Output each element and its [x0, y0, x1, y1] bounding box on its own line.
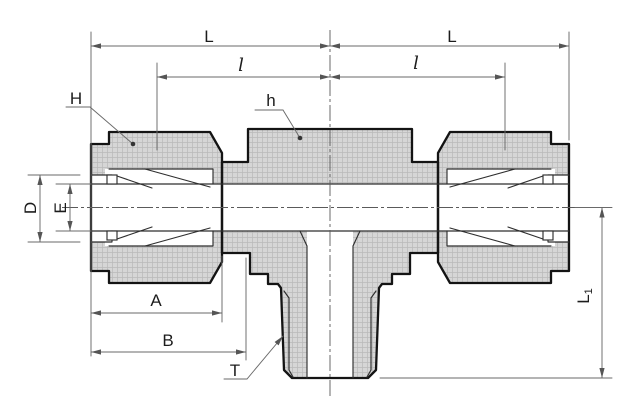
label-B: B [162, 331, 173, 350]
label-L1: L1 [574, 288, 595, 304]
leader-dot-H [131, 142, 136, 147]
label-L1-sub: 1 [583, 288, 595, 294]
fitting-dimension-drawing: L L l l H h D E A B T L1 [0, 0, 629, 412]
label-L-right: L [447, 27, 456, 46]
label-L-left: L [204, 27, 213, 46]
label-L1-base: L [574, 294, 593, 303]
label-A: A [150, 291, 162, 310]
ferrule-right-bottom [543, 231, 553, 240]
ferrule-left-top [107, 175, 117, 184]
label-h: h [266, 91, 275, 110]
label-l-right: l [413, 53, 419, 74]
label-T: T [230, 361, 240, 380]
label-D: D [21, 202, 40, 214]
ferrule-right-top [543, 175, 553, 184]
leader-dot-h [298, 136, 303, 141]
label-l-left: l [238, 55, 244, 76]
ferrule-left-bottom [107, 231, 117, 240]
tee-fitting-svg: L L l l H h D E A B T L1 [0, 0, 629, 412]
label-E: E [51, 202, 70, 213]
label-H: H [70, 89, 82, 108]
